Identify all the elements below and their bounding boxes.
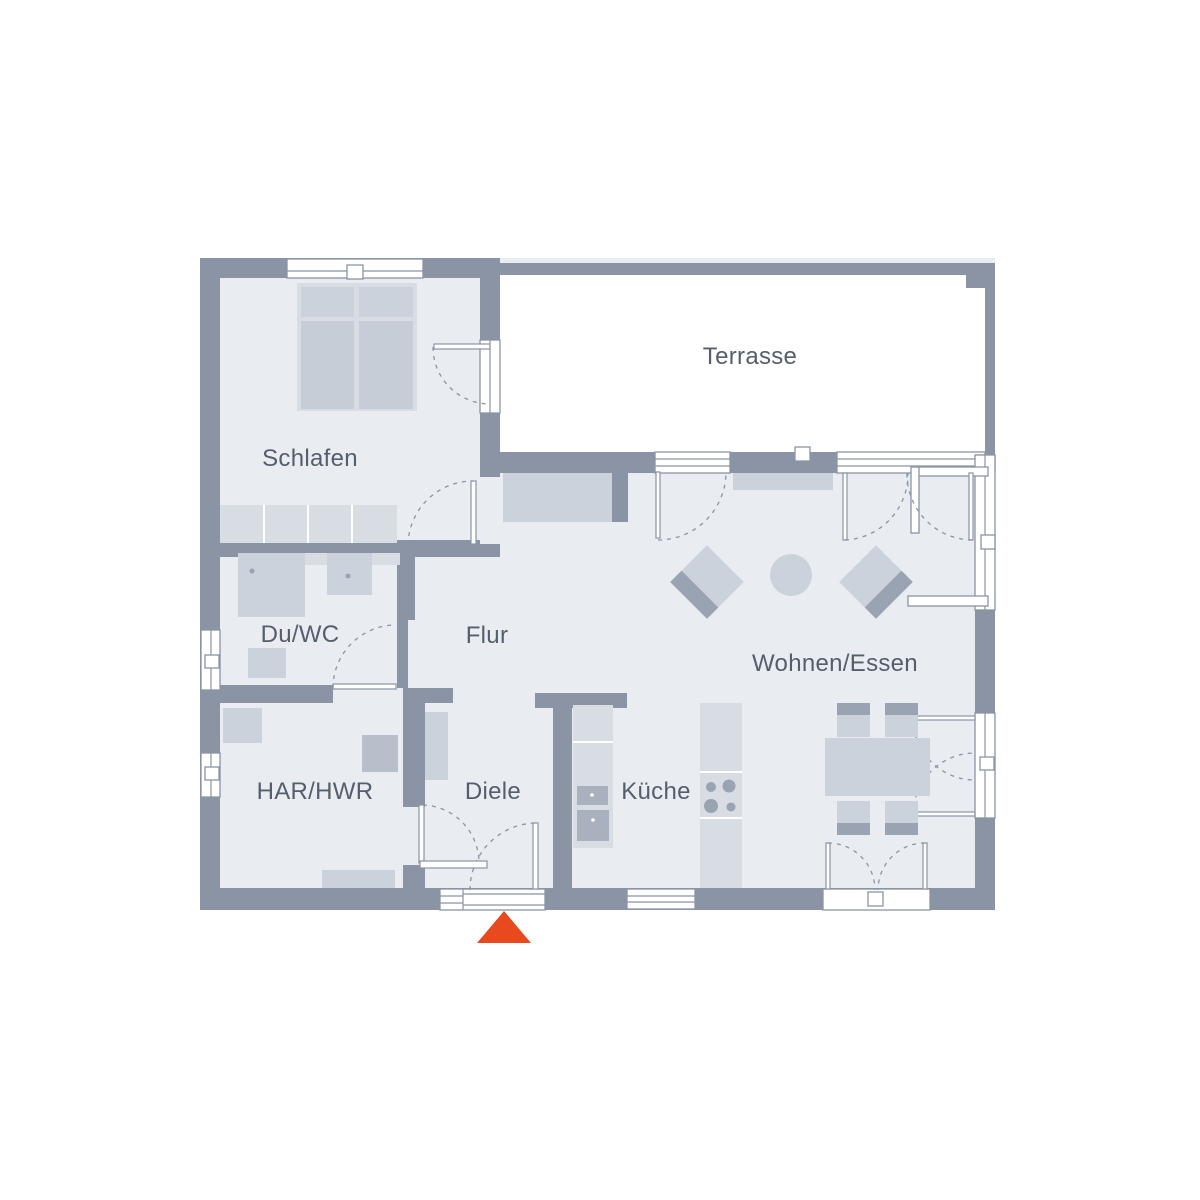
duwc-right-stub: [397, 620, 408, 688]
right-wall-bottom: [975, 818, 995, 888]
schlafen-right-wall-stub: [480, 544, 500, 557]
washbasin-drain: [346, 574, 351, 579]
floor-plan-page: Schlafen Terrasse Du/WC Flur Wohnen/Esse…: [0, 0, 1200, 1200]
right-french-leaf-top: [913, 716, 975, 720]
terrace-wall-marker: [795, 447, 810, 461]
flur-diele-wall-left: [403, 688, 453, 703]
wc-toilet: [248, 648, 286, 678]
cooktop-burner: [704, 799, 718, 813]
wohnen-french-leaf-left: [826, 843, 830, 889]
schlafen-door-leaf: [471, 481, 476, 544]
corner-glazing-rail-top: [913, 467, 988, 476]
label-terrasse: Terrasse: [703, 343, 797, 370]
har-machine-2: [362, 735, 398, 772]
har-cabinet: [322, 870, 395, 888]
label-har-hwr: HAR/HWR: [257, 778, 374, 805]
terrace-french-leaf-right: [969, 473, 973, 540]
cooktop-burner: [727, 803, 736, 812]
floor-plan-svg: Schlafen Terrasse Du/WC Flur Wohnen/Esse…: [0, 0, 1200, 1200]
bed-mattress-right: [359, 321, 413, 409]
duwc-window-marker: [205, 655, 219, 668]
kitchen-counter: [700, 703, 742, 888]
cooktop-burner: [706, 782, 716, 792]
cooktop-burner: [723, 780, 736, 793]
corner-window-marker: [981, 535, 995, 549]
diele-cabinet: [425, 712, 448, 780]
schlafen-wardrobe: [220, 505, 397, 543]
schlafen-window-marker: [347, 265, 363, 279]
kueche-window: [627, 889, 695, 909]
flur-closet-stub: [612, 473, 628, 522]
label-diele: Diele: [465, 778, 521, 805]
schlafen-terrace-door-leaf: [434, 344, 490, 349]
label-du-wc: Du/WC: [261, 621, 340, 648]
entrance-door: [440, 889, 545, 910]
left-wall: [200, 258, 220, 910]
label-flur: Flur: [466, 622, 509, 649]
har-diele-wall: [403, 703, 425, 807]
har-window-marker: [205, 767, 219, 780]
label-wohnen-essen: Wohnen/Essen: [752, 650, 918, 677]
terrace-door-leaf: [656, 472, 660, 538]
sideboard: [733, 473, 833, 490]
right-wall-mid: [975, 610, 995, 713]
shower-drain: [250, 569, 255, 574]
terrace-pillar: [966, 273, 986, 288]
coffee-table: [770, 554, 812, 596]
schlafen-right-wall-upper: [480, 278, 500, 340]
right-french-door-marker: [980, 757, 994, 770]
flur-closet: [503, 473, 612, 522]
duwc-right-wall: [397, 557, 415, 620]
wohnen-french-door-marker: [868, 892, 883, 906]
oven-2: [577, 810, 609, 841]
diele-kueche-wall: [553, 697, 572, 888]
terrace-french-leaf-left: [843, 473, 847, 540]
schlafen-right-wall-lower: [480, 413, 500, 477]
bed-pillow-right: [359, 287, 413, 317]
har-door-leaf: [419, 805, 424, 863]
right-french-leaf-bottom: [913, 812, 975, 816]
diele-bench: [420, 861, 487, 868]
wohnen-french-leaf-right: [923, 843, 927, 889]
terrace-door: [655, 452, 730, 473]
bed-mattress-left: [301, 321, 354, 409]
kitchen-tall-units: [573, 705, 613, 848]
terrace-right-border: [985, 263, 995, 460]
entrance-marker-triangle: [477, 911, 531, 943]
duwc-door-leaf: [333, 684, 396, 689]
har-machine-1: [223, 708, 262, 743]
bed: [297, 283, 417, 411]
terrace-top-border: [500, 263, 995, 275]
corner-glazing-rail-bottom: [908, 596, 988, 606]
dining-table: [825, 738, 930, 796]
entrance-door-leaf: [533, 823, 538, 889]
shower: [238, 553, 305, 617]
label-kueche: Küche: [621, 778, 691, 805]
bed-pillow-left: [301, 287, 354, 317]
label-schlafen: Schlafen: [262, 445, 358, 472]
